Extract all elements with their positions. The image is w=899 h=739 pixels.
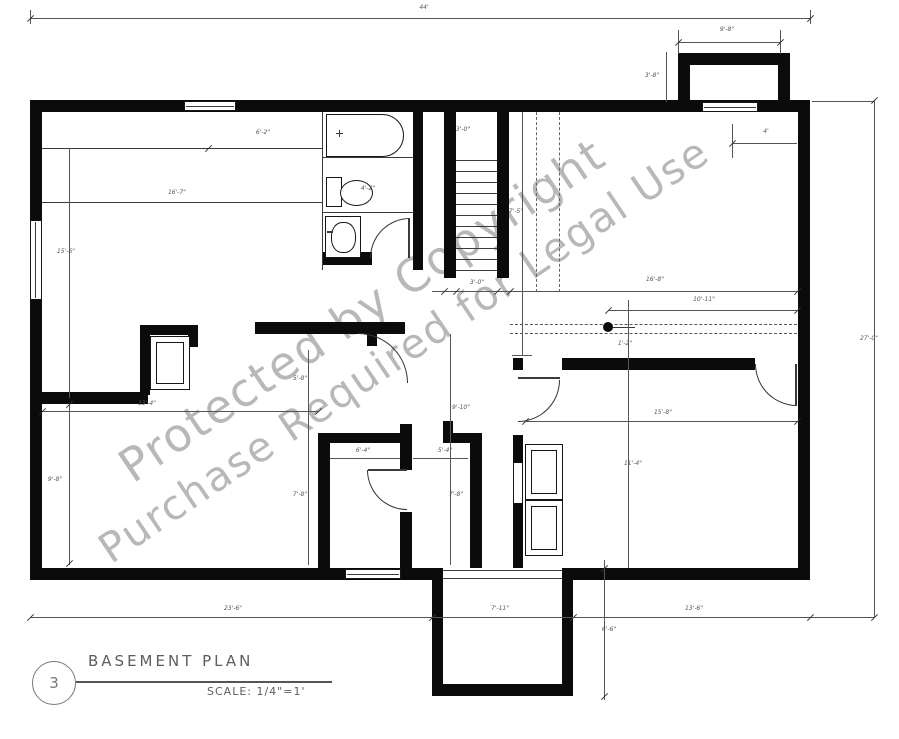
stair-tread [456,171,497,172]
wall-segment [413,112,423,270]
floor-plan: Protected by Copyright Purchase Required… [0,0,899,739]
dimension-tick [66,560,73,567]
overhead-dashed-line [559,112,560,292]
stair-tread [456,204,497,205]
water-heater-icon [156,342,184,384]
stair-tread [456,237,497,238]
partition-line [323,157,413,158]
wall-segment [798,100,810,580]
dimension-label: 4' [763,129,768,135]
dimension-line [512,355,532,356]
window-line [704,107,756,108]
opening-line [443,570,562,571]
wall-segment [678,53,790,65]
dimension-label: 27'-0" [860,336,878,342]
dimension-label: 11'-4" [624,461,642,467]
dimension-line [69,148,70,398]
partition-line [322,112,323,270]
dimension-label: 13'-4" [138,401,156,407]
tub-drain-icon [339,130,340,137]
window-line [35,222,36,298]
dimension-label: 6'-2" [256,130,270,136]
dimension-label: 3'-8" [645,73,659,79]
dimension-line [413,458,468,459]
dimension-label: 44' [419,5,428,11]
wall-segment [562,568,810,580]
stair-tread [456,182,497,183]
dimension-line [432,291,797,292]
wall-segment [400,424,412,470]
stair-tread [456,160,497,161]
dimension-line [42,411,318,412]
wall-segment [318,433,330,568]
dimension-label: 7'-5" [509,209,523,215]
dimension-label: 5'-4" [438,448,452,454]
wall-segment [318,433,406,443]
dimension-line [678,42,780,43]
sheet-number: 3 [49,674,59,692]
opening [513,463,523,503]
stair-tread [456,259,497,260]
dimension-label: 7'-8" [293,492,307,498]
sink-faucet-icon [327,231,333,233]
wall-segment [400,512,412,568]
dimension-line [732,143,797,144]
plan-scale: SCALE: 1/4"=1' [207,685,305,698]
dimension-tick [871,614,878,621]
plan-title: BASEMENT PLAN [88,652,253,670]
dimension-label: 16'-8" [646,277,664,283]
wall-segment [432,568,443,696]
dimension-label: 7'-11" [491,606,509,612]
dimension-line [666,52,667,102]
toilet-bowl-icon [340,180,373,206]
dimension-line [608,310,797,311]
sheet-number-bubble: 3 [32,661,76,705]
dimension-line [308,350,309,565]
dimension-label: 7'-8" [449,492,463,498]
wall-segment [562,568,573,696]
dimension-line [525,421,797,422]
door-arc [367,470,407,510]
dimension-line [69,404,70,565]
stair-tread [456,270,497,271]
door-leaf [368,469,407,471]
dimension-label: 9'-10" [452,405,470,411]
dimension-label: 23'-6" [224,606,242,612]
door-leaf [408,218,410,258]
wall-segment [470,433,482,568]
door-leaf [795,364,797,406]
door-leaf [518,377,560,379]
dimension-line [30,18,810,19]
wall-segment [678,53,690,112]
dimension-label: 6'-6" [602,627,616,633]
beam-dashed-line [510,324,797,325]
bathtub-icon [326,114,404,157]
dimension-label: 5'-8" [293,376,307,382]
wall-segment [140,325,150,395]
overhead-dashed-line [536,112,537,292]
dimension-label: 3'-0" [456,127,470,133]
wall-segment [432,684,573,696]
wall-segment [513,358,523,370]
column-post-icon [603,322,613,332]
wall-segment [497,112,509,278]
wall-segment [513,503,523,568]
wall-segment [255,322,405,334]
door-arc [370,218,410,258]
dimension-label: 15'-6" [57,249,75,255]
soffit-line [42,202,323,203]
furnace-icon [531,506,557,550]
dimension-line [874,100,875,617]
window-line [347,574,399,575]
sink-basin-icon [331,222,356,253]
dimension-line [522,112,523,355]
stair-tread [456,226,497,227]
dimension-label: 10'-11" [693,297,715,303]
beam-dashed-line [510,333,797,334]
window-line [186,106,234,107]
wall-segment [30,100,810,112]
post-tick [613,327,635,328]
dimension-label: 9'-8" [720,27,734,33]
soffit-line [42,148,323,149]
wall-segment [444,112,456,278]
dimension-label: 1'-2" [618,341,632,347]
dimension-label: 4'-2" [361,186,375,192]
dimension-line [330,458,400,459]
door-arc [755,364,797,406]
door-arc [518,380,560,422]
dimension-line [30,617,874,618]
stair-tread [456,215,497,216]
window [30,220,42,300]
dimension-label: 9'-8" [48,477,62,483]
wall-segment [513,435,523,463]
dimension-label: 3'-0" [470,280,484,286]
wall-segment [778,53,790,112]
wall-segment [562,358,755,370]
dimension-label: 6'-4" [356,448,370,454]
dimension-label: 13'-6" [685,606,703,612]
title-underline [76,681,332,683]
stair-tread [456,248,497,249]
opening-line [443,578,562,579]
dimension-label: 15'-8" [654,410,672,416]
dimension-label: 16'-7" [168,190,186,196]
extension-line [812,101,874,102]
furnace-icon [531,450,557,494]
wall-segment [42,392,148,404]
partition-line [323,212,413,213]
wall-segment [30,100,42,580]
stair-tread [456,193,497,194]
